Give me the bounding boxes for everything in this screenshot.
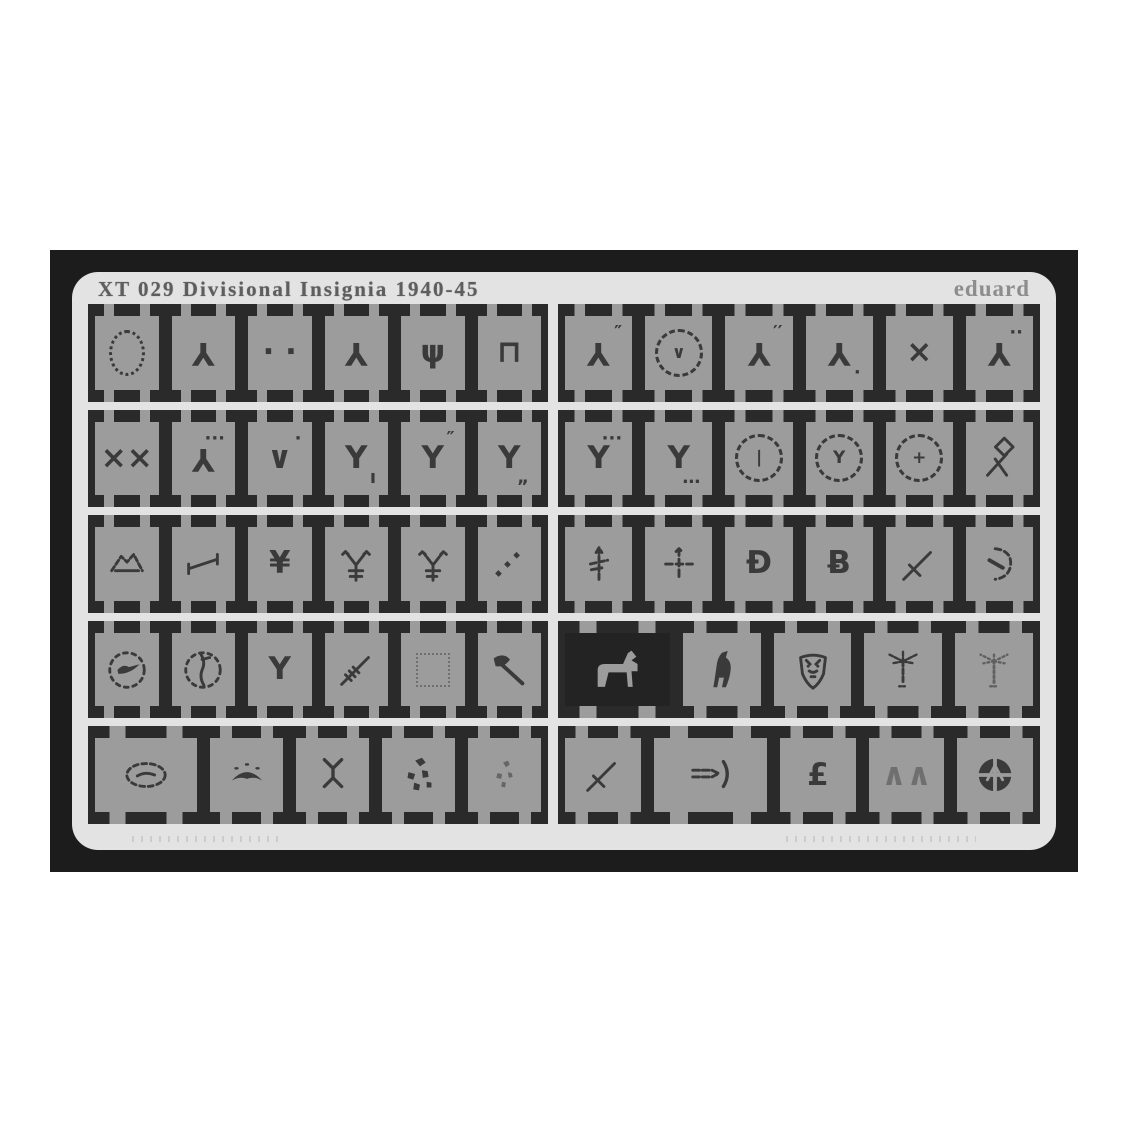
part-double-x: ×× xyxy=(95,422,159,496)
part-circle-y: Y xyxy=(806,422,873,496)
part-y-arrow-cross xyxy=(325,527,389,601)
part-y-inverted-2dots: Y·· xyxy=(966,316,1033,390)
trident-icon: ψ xyxy=(420,337,445,368)
part-y-2ticks-low: Y„ xyxy=(478,422,542,496)
mountain-icon xyxy=(104,541,150,587)
part-crossbow xyxy=(654,738,767,812)
part-x-single: × xyxy=(886,316,953,390)
fret-row: Y″∨Y′′Y·×Y·· xyxy=(558,304,1040,402)
bird-circle-icon xyxy=(104,647,150,693)
panel-left: Y∙ ∙Yψ⊓××Y···∨·YıY″Y„¥···Y xyxy=(88,304,548,824)
fret-row: Y xyxy=(88,621,548,719)
part-palm-dotted xyxy=(955,633,1033,707)
faint-outline-icon xyxy=(416,653,450,687)
dotted-circle-check-icon: ∨ xyxy=(655,329,703,377)
photo-frame: XT 029 Divisional Insignia 1940-45 eduar… xyxy=(50,250,1078,872)
fret-row: Y∙ ∙Yψ⊓ xyxy=(88,304,548,402)
bow-b-icon: Ƀ xyxy=(827,548,851,579)
panel-right: Y″∨Y′′Y·×Y··Y···Y…∣Y+ÐɃ£∧∧ xyxy=(558,304,1040,824)
part-bow-d: Ð xyxy=(725,527,792,601)
axe-icon xyxy=(486,647,532,693)
y-arrow-cross-dashed-icon xyxy=(410,541,456,587)
part-y-plain: Y xyxy=(248,633,312,707)
part-y-inverted: Y xyxy=(172,316,236,390)
part-faint-dashes: ∧∧ xyxy=(869,738,945,812)
part-fish-oval xyxy=(95,738,197,812)
part-pound: £ xyxy=(780,738,856,812)
part-bear xyxy=(683,633,761,707)
part-horse xyxy=(565,633,670,707)
y-2ticks-icon: Y xyxy=(422,443,444,474)
part-y-inverted-3dots: Y··· xyxy=(172,422,236,496)
monogram-circle-icon xyxy=(180,647,226,693)
part-mountain xyxy=(95,527,159,601)
part-circle-bar: ∣ xyxy=(725,422,792,496)
part-trident: ψ xyxy=(401,316,465,390)
part-bird-circle xyxy=(95,633,159,707)
part-laurel-wreath xyxy=(95,316,159,390)
laurel-wreath-icon xyxy=(109,330,145,376)
y-inverted-ticks-icon: Y xyxy=(748,337,770,368)
part-cross-arrow xyxy=(645,527,712,601)
part-palm-dashed xyxy=(864,633,942,707)
y-plain-icon: Y xyxy=(269,654,291,685)
horse-icon xyxy=(582,641,652,699)
part-y-3ticks-low: Y… xyxy=(645,422,712,496)
part-bow-b: Ƀ xyxy=(806,527,873,601)
fret-panels: Y∙ ∙Yψ⊓××Y···∨·YıY″Y„¥···Y Y″∨Y′′Y·×Y··Y… xyxy=(88,304,1040,824)
part-wheel xyxy=(957,738,1033,812)
dashed-hook-icon xyxy=(976,541,1022,587)
fret-row: £∧∧ xyxy=(558,726,1040,824)
splatter-large-icon xyxy=(396,752,442,798)
fret-row: Y···Y…∣Y+ xyxy=(558,410,1040,508)
fret-row xyxy=(558,621,1040,719)
sheet-title: XT 029 Divisional Insignia 1940-45 xyxy=(98,277,480,302)
brand-logo: eduard xyxy=(954,276,1030,302)
diagonal-dashes-icon: ··· xyxy=(486,541,532,587)
part-splatter-large xyxy=(382,738,455,812)
manta-icon xyxy=(224,752,270,798)
part-y-inverted-dot: Y· xyxy=(806,316,873,390)
two-dots-icon: ∙ ∙ xyxy=(263,337,297,368)
part-table-stand: ⊓ xyxy=(478,316,542,390)
bull-shield-icon xyxy=(790,647,836,693)
part-y-inverted-2ticks: Y″ xyxy=(565,316,632,390)
part-sword-hatched xyxy=(325,633,389,707)
part-sword-slant xyxy=(886,527,953,601)
part-circle-cross: + xyxy=(886,422,953,496)
etch-sheet: XT 029 Divisional Insignia 1940-45 eduar… xyxy=(72,272,1056,850)
part-lever xyxy=(172,527,236,601)
etch-residue-left xyxy=(132,836,282,842)
part-y-x xyxy=(296,738,369,812)
y-arrow-cross-icon xyxy=(333,541,379,587)
splatter-small-icon xyxy=(482,752,528,798)
part-y-inverted: Y xyxy=(325,316,389,390)
sheet-header: XT 029 Divisional Insignia 1940-45 eduar… xyxy=(98,274,1030,304)
etch-residue-right xyxy=(786,836,976,842)
part-faint-outline xyxy=(401,633,465,707)
part-dotted-circle-check: ∨ xyxy=(645,316,712,390)
part-y-arrow-cross-dashed xyxy=(401,527,465,601)
fret-row: ¥··· xyxy=(88,515,548,613)
part-manta xyxy=(210,738,283,812)
part-diagonal-dashes: ··· xyxy=(478,527,542,601)
part-y-tick: Yı xyxy=(325,422,389,496)
y-inverted-2dots-icon: Y xyxy=(988,337,1010,368)
part-monogram-circle xyxy=(172,633,236,707)
y-tick-icon: Y xyxy=(345,443,367,474)
crossbow-icon xyxy=(687,752,733,798)
part-axe xyxy=(478,633,542,707)
sword-slant-icon xyxy=(896,541,942,587)
fret-row: ××Y···∨·YıY″Y„ xyxy=(88,410,548,508)
diamond-staves-icon xyxy=(976,435,1022,481)
part-y-3dots: Y··· xyxy=(565,422,632,496)
part-dashed-hook xyxy=(966,527,1033,601)
lever-icon xyxy=(180,541,226,587)
bear-icon xyxy=(699,647,745,693)
sword-slant-icon xyxy=(580,752,626,798)
check-dot-icon: ∨ xyxy=(267,443,292,474)
sword-hatched-icon xyxy=(333,647,379,693)
wheel-icon xyxy=(972,752,1018,798)
part-y-inverted-ticks: Y′′ xyxy=(725,316,792,390)
part-check-dot: ∨· xyxy=(248,422,312,496)
part-y-crossbar: ¥ xyxy=(248,527,312,601)
fish-oval-icon xyxy=(123,752,169,798)
fret-row xyxy=(88,726,548,824)
circle-bar-icon: ∣ xyxy=(735,434,783,482)
part-sword-up xyxy=(565,527,632,601)
y-inverted-icon: Y xyxy=(192,337,214,368)
part-y-2ticks: Y″ xyxy=(401,422,465,496)
palm-dashed-icon xyxy=(880,647,926,693)
part-splatter-small xyxy=(468,738,541,812)
double-x-icon: ×× xyxy=(101,443,153,474)
circle-cross-icon: + xyxy=(895,434,943,482)
page-background: { "sheet": { "title": "XT 029 Divisional… xyxy=(0,0,1130,1130)
y-x-icon xyxy=(310,752,356,798)
y-inverted-dot-icon: Y xyxy=(828,337,850,368)
cross-arrow-icon xyxy=(656,541,702,587)
x-single-icon: × xyxy=(906,337,932,368)
part-sword-slant xyxy=(565,738,641,812)
part-bull-shield xyxy=(774,633,852,707)
fret-row: ÐɃ xyxy=(558,515,1040,613)
y-inverted-icon: Y xyxy=(345,337,367,368)
y-crossbar-icon: ¥ xyxy=(269,548,291,579)
table-stand-icon: ⊓ xyxy=(497,337,522,368)
y-inverted-2ticks-icon: Y xyxy=(587,337,609,368)
part-two-dots: ∙ ∙ xyxy=(248,316,312,390)
circle-y-icon: Y xyxy=(815,434,863,482)
faint-dashes-icon: ∧∧ xyxy=(881,760,931,791)
palm-dotted-icon xyxy=(971,647,1017,693)
pound-icon: £ xyxy=(807,760,829,791)
bow-d-icon: Ð xyxy=(746,548,772,579)
part-diamond-staves xyxy=(966,422,1033,496)
sword-up-icon xyxy=(576,541,622,587)
